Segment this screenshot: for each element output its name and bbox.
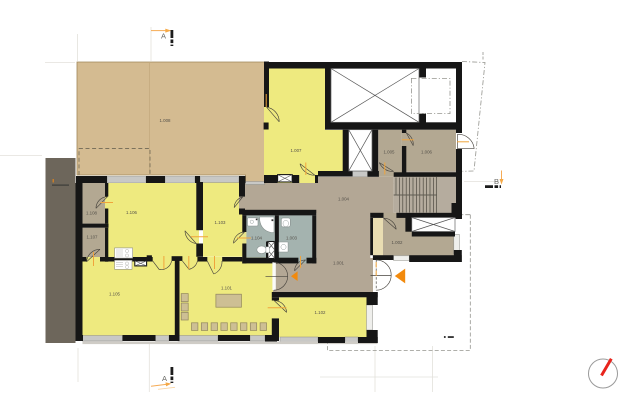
svg-text:1.104: 1.104 xyxy=(251,236,263,241)
svg-text:1.003: 1.003 xyxy=(286,236,298,241)
svg-text:1.101: 1.101 xyxy=(221,286,233,291)
svg-text:1.103: 1.103 xyxy=(215,220,227,225)
svg-text:1.005: 1.005 xyxy=(384,150,396,155)
svg-text:1.007: 1.007 xyxy=(291,148,303,153)
svg-text:1.108: 1.108 xyxy=(86,211,98,216)
svg-text:1.102: 1.102 xyxy=(315,310,327,315)
svg-text:1.008: 1.008 xyxy=(160,118,172,123)
svg-text:1.105: 1.105 xyxy=(109,292,121,297)
svg-text:1.001: 1.001 xyxy=(333,261,345,266)
svg-text:1.107: 1.107 xyxy=(87,235,99,240)
svg-text:A: A xyxy=(162,374,167,383)
svg-text:1.006: 1.006 xyxy=(421,150,433,155)
svg-text:A: A xyxy=(161,32,166,41)
svg-text:1.106: 1.106 xyxy=(126,210,138,215)
svg-text:1.002: 1.002 xyxy=(392,240,404,245)
svg-text:1.004: 1.004 xyxy=(338,197,350,202)
svg-text:B: B xyxy=(494,177,499,186)
